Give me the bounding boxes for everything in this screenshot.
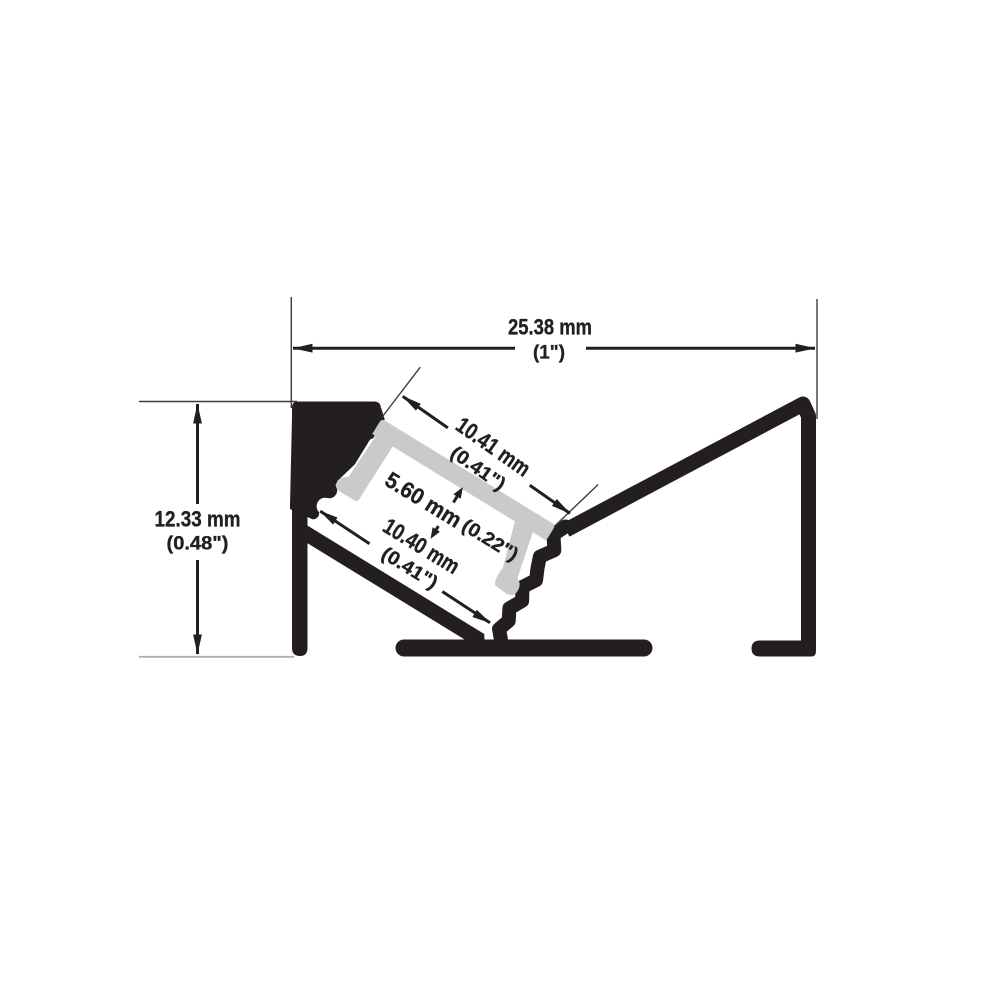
- svg-text:25.38 mm: 25.38 mm: [508, 315, 592, 340]
- svg-text:(1"): (1"): [533, 343, 565, 364]
- svg-text:(0.48"): (0.48"): [167, 534, 229, 555]
- svg-text:12.33 mm: 12.33 mm: [155, 507, 241, 532]
